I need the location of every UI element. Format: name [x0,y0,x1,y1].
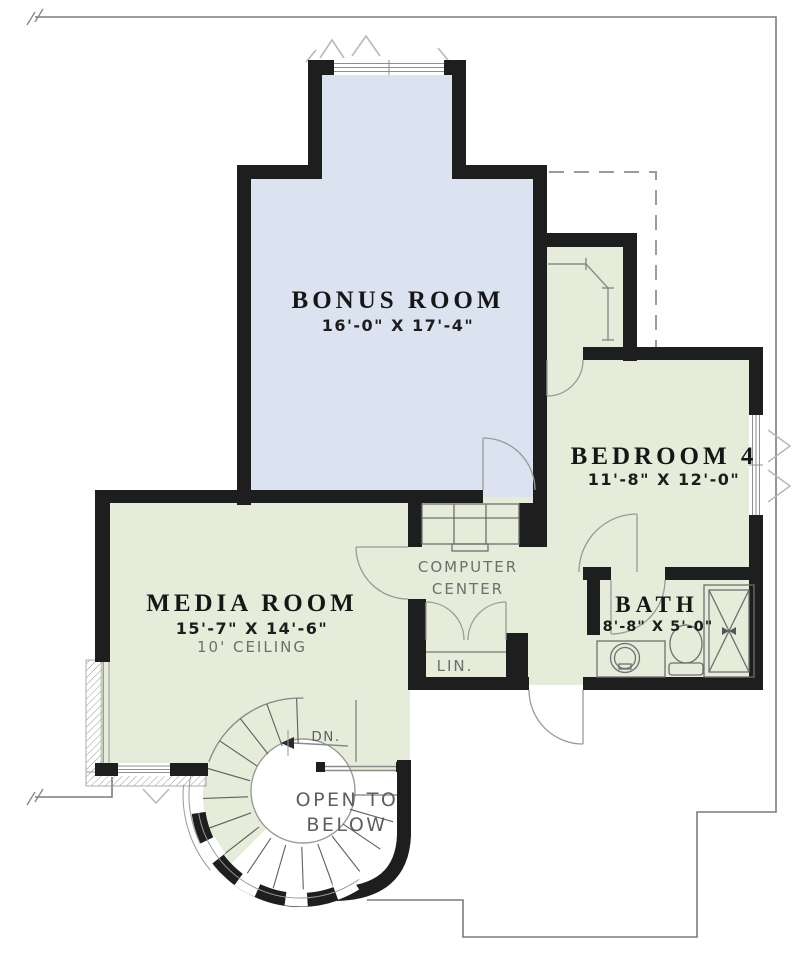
bedroom4-dims: 11'-8" X 12'-0" [588,470,741,489]
storage-door [529,690,583,744]
computer-center-label-1: COMPUTER [418,558,518,576]
dn-label: DN. [311,729,340,745]
bonus-room-dims: 16'-0" X 17'-4" [322,316,475,335]
bonus-room-window [334,60,444,75]
floor-plan-page: BONUS ROOM 16'-0" X 17'-4" MEDIA ROOM 15… [0,0,800,960]
computer-center-label-2: CENTER [432,580,504,598]
bath-dims: 8'-8" X 5'-0" [603,619,714,635]
media-room-label: MEDIA ROOM [146,590,358,617]
bath-label: BATH [615,592,698,617]
media-room-ceiling: 10' CEILING [197,638,307,656]
linen-label: LIN. [437,657,474,675]
bedroom4-label: BEDROOM 4 [571,443,758,470]
bonus-room-shape [243,68,540,497]
open-below-label-1: OPEN TO [296,789,399,811]
bonus-room-label: BONUS ROOM [292,287,505,314]
media-room-dims: 15'-7" X 14'-6" [176,619,329,638]
media-room-window [118,763,170,776]
open-below-label-2: BELOW [306,814,387,836]
floor-plan-drawing: BONUS ROOM 16'-0" X 17'-4" MEDIA ROOM 15… [0,0,800,960]
